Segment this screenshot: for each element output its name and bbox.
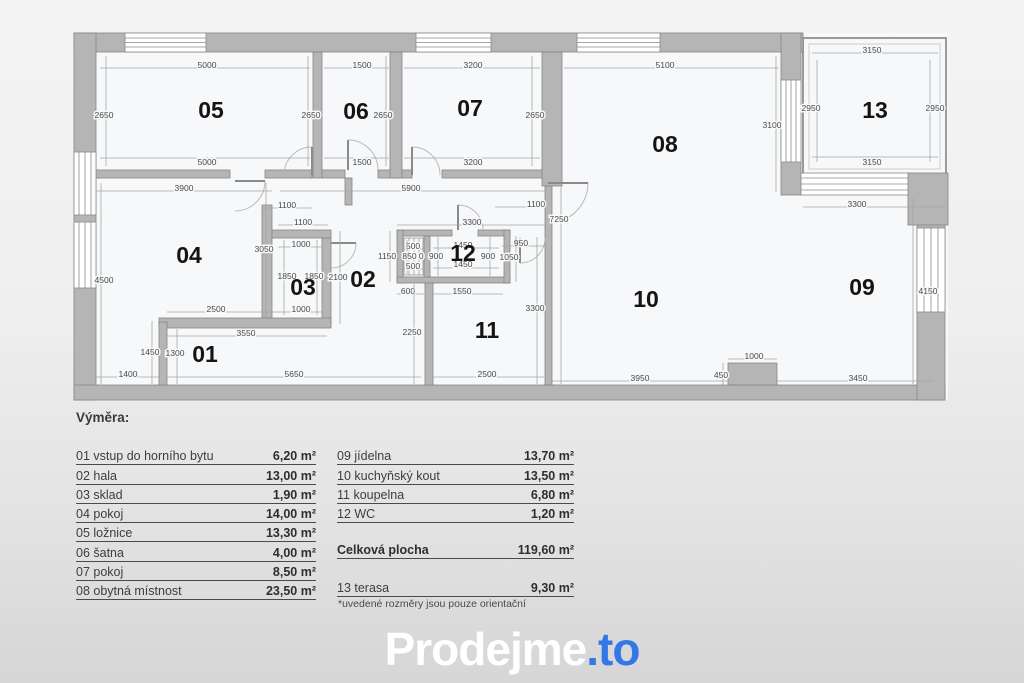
- legend-row-label: 05 ložnice: [76, 526, 132, 540]
- legend-row-label: 09 jídelna: [337, 449, 391, 463]
- dim-label: 2500: [478, 369, 497, 379]
- dim-label: 1500: [353, 157, 372, 167]
- dim-label: 1000: [745, 351, 764, 361]
- legend-row-value: 8,50 m²: [273, 565, 316, 579]
- dim-label: 3300: [526, 303, 545, 313]
- legend-row-value: 23,50 m²: [266, 584, 316, 598]
- legend-row-label: 08 obytná místnost: [76, 584, 182, 598]
- dim-label: 2650: [302, 110, 321, 120]
- room-label: 01: [192, 341, 218, 367]
- floorplan: 5000265026505000150026501500320026503200…: [0, 0, 1024, 410]
- legend-row-value: 13,30 m²: [266, 526, 316, 540]
- dim-label: 1300: [166, 348, 185, 358]
- room-label: 05: [198, 97, 224, 123]
- legend-row: 11 koupelna6,80 m²: [337, 485, 574, 504]
- dim-label: 1500: [353, 60, 372, 70]
- legend-row: 03 sklad1,90 m²: [76, 485, 316, 504]
- legend-left-column: 01 vstup do horního bytu6,20 m²02 hala13…: [76, 446, 316, 600]
- dim-label: 4500: [95, 275, 114, 285]
- legend-row-value: 4,00 m²: [273, 546, 316, 560]
- dim-label: 3450: [849, 373, 868, 383]
- dim-label: 2650: [95, 110, 114, 120]
- floorplan-svg: 5000265026505000150026501500320026503200…: [0, 0, 1024, 410]
- room-label: 03: [290, 274, 316, 300]
- legend-row: 10 kuchyňský kout13,50 m²: [337, 465, 574, 484]
- legend-row-value: 1,20 m²: [531, 507, 574, 521]
- dim-label: 5000: [198, 60, 217, 70]
- dim-label: 3150: [863, 157, 882, 167]
- dim-label: 1100: [278, 200, 297, 210]
- room-label: 12: [450, 240, 476, 266]
- dim-label: 1150: [378, 251, 397, 261]
- dim-label: 3300: [463, 217, 482, 227]
- dim-label: 450: [714, 370, 728, 380]
- room-label: 02: [350, 266, 376, 292]
- dim-label: 900: [429, 251, 443, 261]
- dim-label: 3200: [464, 60, 483, 70]
- dim-label: 7250: [550, 214, 569, 224]
- dim-label: 5900: [402, 183, 421, 193]
- dim-label: 2650: [526, 110, 545, 120]
- dim-label: 500: [406, 261, 420, 271]
- dim-label: 3900: [175, 183, 194, 193]
- room-label: 11: [475, 317, 500, 343]
- dim-label: 2650: [374, 110, 393, 120]
- dim-label: 600: [401, 286, 415, 296]
- legend-row: 12 WC1,20 m²: [337, 504, 574, 523]
- room-label: 06: [343, 98, 369, 124]
- legend-header: Výměra:: [76, 410, 129, 425]
- legend-row-label: 01 vstup do horního bytu: [76, 449, 214, 463]
- legend-row: 06 šatna4,00 m²: [76, 542, 316, 561]
- dim-label: 1100: [294, 217, 313, 227]
- dim-label: 4150: [919, 286, 938, 296]
- dim-label: 5100: [656, 60, 675, 70]
- legend-row: 04 pokoj14,00 m²: [76, 504, 316, 523]
- legend-row: 08 obytná místnost23,50 m²: [76, 581, 316, 600]
- dim-label: 1400: [119, 369, 138, 379]
- legend-row-label: 06 šatna: [76, 546, 124, 560]
- legend-row-label: 03 sklad: [76, 488, 123, 502]
- room-label: 09: [849, 274, 875, 300]
- legend-terrace-row: 13 terasa 9,30 m²: [337, 578, 574, 597]
- dim-label: 3300: [848, 199, 867, 209]
- room-label: 10: [633, 286, 659, 312]
- room-label: 08: [652, 131, 678, 157]
- dim-label: 3950: [631, 373, 650, 383]
- page: 5000265026505000150026501500320026503200…: [0, 0, 1024, 683]
- dim-label: 3200: [464, 157, 483, 167]
- legend-row-label: 12 WC: [337, 507, 375, 521]
- legend-row-label: 07 pokoj: [76, 565, 123, 579]
- room-label: 07: [457, 95, 483, 121]
- legend-row-value: 6,80 m²: [531, 488, 574, 502]
- total-value: 119,60 m²: [518, 543, 574, 557]
- logo-text-main: Prodejme: [385, 623, 587, 675]
- legend-row: 07 pokoj8,50 m²: [76, 562, 316, 581]
- legend-row-label: 04 pokoj: [76, 507, 123, 521]
- dim-label: 900: [481, 251, 495, 261]
- dim-label: 1050: [500, 252, 519, 262]
- legend-row-value: 14,00 m²: [266, 507, 316, 521]
- legend-row-value: 13,70 m²: [524, 449, 574, 463]
- dim-label: 5650: [285, 369, 304, 379]
- dim-label: 3150: [863, 45, 882, 55]
- terrace-value: 9,30 m²: [531, 581, 574, 595]
- dim-label: 1100: [527, 199, 546, 209]
- legend-row: 01 vstup do horního bytu6,20 m²: [76, 446, 316, 465]
- legend-total-row: Celková plocha 119,60 m²: [337, 540, 574, 559]
- legend-row: 02 hala13,00 m²: [76, 465, 316, 484]
- legend-row-label: 11 koupelna: [337, 488, 404, 502]
- room-label: 04: [176, 242, 202, 268]
- dim-label: 1550: [453, 286, 472, 296]
- dim-label: 2950: [926, 103, 945, 113]
- total-label: Celková plocha: [337, 543, 429, 557]
- room-label: 13: [862, 97, 888, 123]
- dim-label: 850 0: [402, 251, 424, 261]
- legend-row: 05 ložnice13,30 m²: [76, 523, 316, 542]
- dim-label: 2100: [329, 272, 348, 282]
- dim-label: 500: [406, 241, 420, 251]
- dim-label: 3100: [763, 120, 782, 130]
- legend-row-label: 10 kuchyňský kout: [337, 469, 440, 483]
- terrace-label: 13 terasa: [337, 581, 389, 595]
- dim-label: 5000: [198, 157, 217, 167]
- dim-label: 2950: [802, 103, 821, 113]
- dim-label: 3550: [237, 328, 256, 338]
- dim-label: 1000: [292, 304, 311, 314]
- legend-row-value: 13,50 m²: [524, 469, 574, 483]
- legend-row-value: 1,90 m²: [273, 488, 316, 502]
- dim-label: 1000: [292, 239, 311, 249]
- legend-footnote: *uvedené rozměry jsou pouze orientační: [338, 598, 526, 610]
- dim-label: 2500: [207, 304, 226, 314]
- legend-row-value: 13,00 m²: [266, 469, 316, 483]
- dim-label: 1450: [141, 347, 160, 357]
- logo: Prodejme.to: [0, 622, 1024, 676]
- legend-row-value: 6,20 m²: [273, 449, 316, 463]
- legend-row: 09 jídelna13,70 m²: [337, 446, 574, 465]
- legend-right-column: 09 jídelna13,70 m²10 kuchyňský kout13,50…: [337, 446, 574, 523]
- dim-label: 2250: [403, 327, 422, 337]
- dim-label: 3050: [255, 244, 274, 254]
- legend-row-label: 02 hala: [76, 469, 117, 483]
- logo-text-accent: .to: [586, 623, 639, 675]
